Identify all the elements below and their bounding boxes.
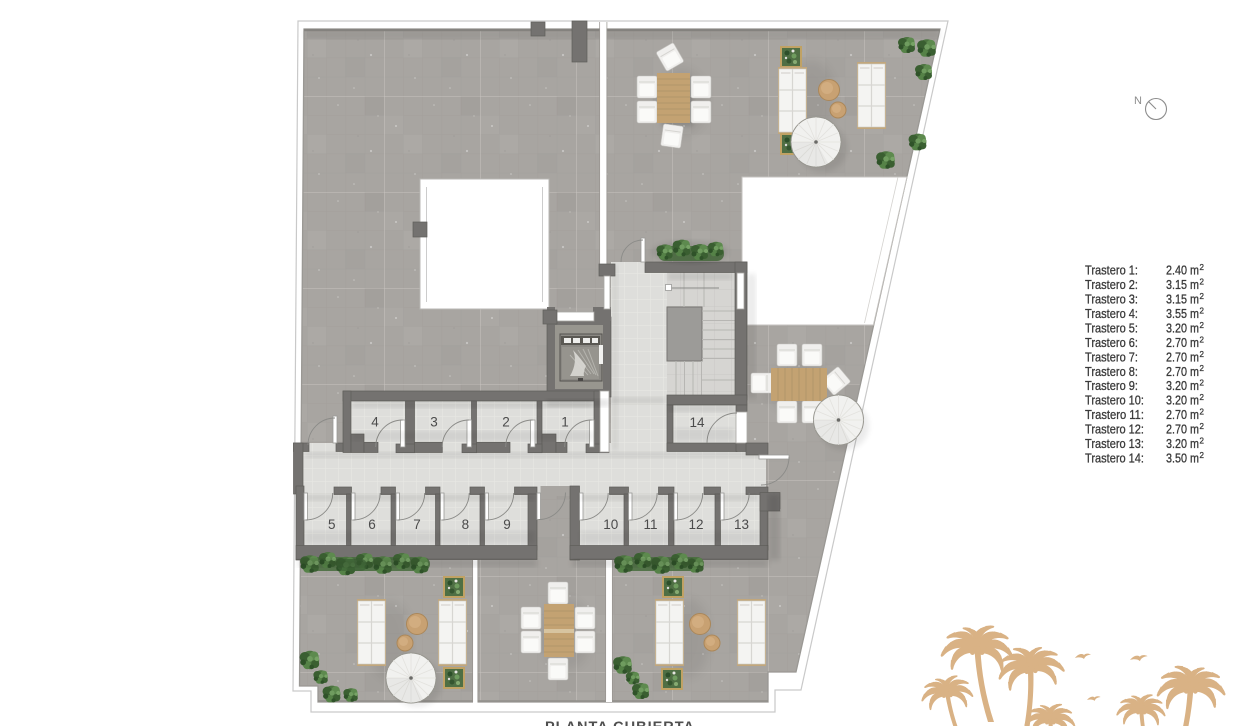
svg-text:2: 2 (502, 415, 510, 430)
svg-text:2: 2 (1200, 437, 1205, 446)
svg-text:2: 2 (1200, 350, 1205, 359)
svg-text:N: N (1134, 95, 1142, 107)
svg-text:PLANTA CUBIERTA: PLANTA CUBIERTA (545, 720, 695, 726)
svg-text:Trastero 7:: Trastero 7: (1085, 349, 1138, 364)
svg-text:2.70 m: 2.70 m (1166, 422, 1199, 437)
svg-text:2.40 m: 2.40 m (1166, 263, 1199, 278)
svg-text:Trastero 9:: Trastero 9: (1085, 378, 1138, 393)
svg-text:8: 8 (462, 517, 470, 532)
svg-text:2.70 m: 2.70 m (1166, 349, 1199, 364)
svg-text:6: 6 (368, 517, 376, 532)
svg-text:2: 2 (1200, 335, 1205, 344)
svg-text:2.70 m: 2.70 m (1166, 407, 1199, 422)
svg-text:5: 5 (328, 517, 336, 532)
svg-text:Trastero 2:: Trastero 2: (1085, 277, 1138, 292)
svg-text:Trastero 13:: Trastero 13: (1085, 436, 1144, 451)
svg-text:3: 3 (430, 415, 438, 430)
svg-text:7: 7 (413, 517, 421, 532)
svg-text:Trastero 14:: Trastero 14: (1085, 451, 1144, 466)
svg-text:2: 2 (1200, 422, 1205, 431)
svg-text:Trastero 12:: Trastero 12: (1085, 422, 1144, 437)
svg-text:13: 13 (734, 517, 749, 532)
svg-text:3.20 m: 3.20 m (1166, 436, 1199, 451)
svg-text:1: 1 (561, 415, 569, 430)
svg-text:2: 2 (1200, 364, 1205, 373)
svg-text:3.20 m: 3.20 m (1166, 320, 1199, 335)
svg-text:Trastero 5:: Trastero 5: (1085, 320, 1138, 335)
svg-text:2: 2 (1200, 292, 1205, 301)
svg-text:14: 14 (689, 415, 705, 430)
svg-text:2: 2 (1200, 393, 1205, 402)
svg-text:3.50 m: 3.50 m (1166, 451, 1199, 466)
svg-text:Trastero 10:: Trastero 10: (1085, 393, 1144, 408)
svg-text:3.55 m: 3.55 m (1166, 306, 1199, 321)
svg-text:2: 2 (1200, 379, 1205, 388)
svg-text:Trastero 11:: Trastero 11: (1085, 407, 1144, 422)
svg-text:12: 12 (688, 517, 703, 532)
svg-text:9: 9 (503, 517, 511, 532)
svg-text:3.20 m: 3.20 m (1166, 393, 1199, 408)
svg-text:Trastero 6:: Trastero 6: (1085, 335, 1138, 350)
svg-text:2: 2 (1200, 321, 1205, 330)
svg-text:2: 2 (1200, 408, 1205, 417)
svg-text:11: 11 (643, 517, 657, 532)
svg-text:Trastero 4:: Trastero 4: (1085, 306, 1138, 321)
svg-text:2.70 m: 2.70 m (1166, 364, 1199, 379)
svg-text:2: 2 (1200, 451, 1205, 460)
svg-text:10: 10 (603, 517, 618, 532)
svg-text:3.15 m: 3.15 m (1166, 292, 1199, 307)
svg-text:2: 2 (1200, 307, 1205, 316)
svg-text:3.15 m: 3.15 m (1166, 277, 1199, 292)
svg-text:3.20 m: 3.20 m (1166, 378, 1199, 393)
svg-text:2: 2 (1200, 263, 1205, 272)
svg-text:Trastero 8:: Trastero 8: (1085, 364, 1138, 379)
svg-text:4: 4 (371, 415, 379, 430)
svg-text:2: 2 (1200, 278, 1205, 287)
svg-text:2.70 m: 2.70 m (1166, 335, 1199, 350)
svg-text:Trastero 3:: Trastero 3: (1085, 292, 1138, 307)
svg-text:Trastero 1:: Trastero 1: (1085, 263, 1138, 278)
